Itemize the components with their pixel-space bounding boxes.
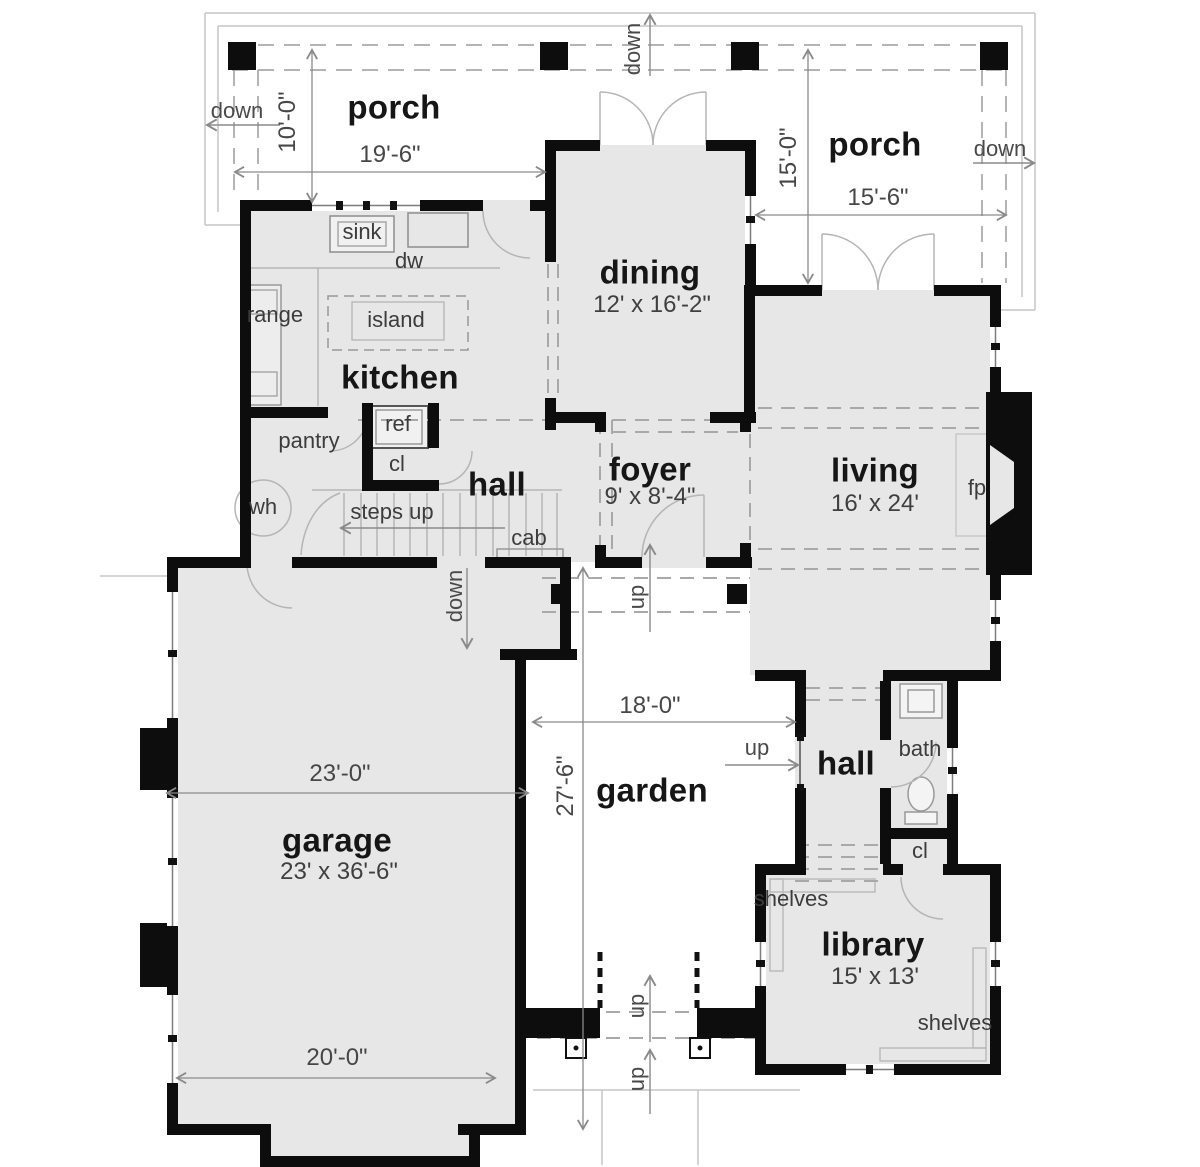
closet-label-rear: cl bbox=[912, 840, 928, 862]
down-arrow-label-stairs: down bbox=[444, 570, 466, 623]
foyer-size-label: 9' x 8'-4" bbox=[604, 485, 695, 509]
garage-size-label: 23' x 36'-6" bbox=[280, 860, 398, 884]
steps-up-label: steps up bbox=[350, 501, 433, 523]
shelves-label-nw: shelves bbox=[754, 888, 829, 910]
porch-left-depth-dim: 10'-0" bbox=[276, 91, 300, 152]
library-size-label: 15' x 13' bbox=[831, 965, 919, 989]
garden-depth-dim: 27'-6" bbox=[554, 755, 578, 816]
sink-label: sink bbox=[342, 221, 381, 243]
garage-width-top-dim: 23'-0" bbox=[309, 762, 370, 786]
porch-right-label: porch bbox=[828, 128, 921, 161]
dining-size-label: 12' x 16'-2" bbox=[593, 293, 711, 317]
down-arrow-label-right: down bbox=[974, 138, 1027, 160]
dw-label: dw bbox=[395, 250, 423, 272]
porch-left-label: porch bbox=[347, 91, 440, 124]
living-label: living bbox=[831, 454, 919, 487]
living-size-label: 16' x 24' bbox=[831, 492, 919, 516]
garage-width-bottom-dim: 20'-0" bbox=[306, 1046, 367, 1070]
fireplace-label: fp bbox=[968, 477, 986, 499]
room-fills bbox=[172, 145, 996, 1160]
floor-plan-page: porch 19'-6" 10'-0" down down porch 15'-… bbox=[0, 0, 1200, 1167]
water-heater-label: wh bbox=[249, 496, 277, 518]
garden-width-dim: 18'-0" bbox=[619, 694, 680, 718]
hall-main-label: hall bbox=[468, 468, 526, 501]
shelves-label-se: shelves bbox=[918, 1012, 993, 1034]
porch-right-width-dim: 15'-6" bbox=[847, 186, 908, 210]
bath-label: bath bbox=[899, 738, 942, 760]
up-arrow-label-stoop-2: up bbox=[626, 1067, 648, 1091]
dining-label: dining bbox=[600, 256, 701, 289]
garden-label: garden bbox=[596, 774, 708, 807]
library-label: library bbox=[822, 928, 925, 961]
down-arrow-label-left: down bbox=[211, 100, 264, 122]
up-arrow-label-foyer: up bbox=[626, 585, 648, 609]
island-label: island bbox=[367, 309, 424, 331]
hall-rear-label: hall bbox=[817, 747, 875, 780]
pantry-label: pantry bbox=[278, 430, 339, 452]
kitchen-label: kitchen bbox=[341, 361, 459, 394]
cab-label: cab bbox=[511, 527, 546, 549]
up-arrow-label-stoop-1: up bbox=[626, 994, 648, 1018]
porch-right-depth-dim: 15'-0" bbox=[777, 127, 801, 188]
foyer-label: foyer bbox=[609, 453, 691, 486]
range-label: range bbox=[247, 304, 303, 326]
garage-label: garage bbox=[282, 824, 392, 857]
closet-label-main: cl bbox=[389, 453, 405, 475]
up-arrow-label-hall: up bbox=[745, 737, 769, 759]
down-arrow-label-top: down bbox=[622, 23, 644, 76]
porch-left-width-dim: 19'-6" bbox=[359, 143, 420, 167]
floor-plan-drawing bbox=[0, 0, 1200, 1167]
ref-label: ref bbox=[385, 413, 411, 435]
